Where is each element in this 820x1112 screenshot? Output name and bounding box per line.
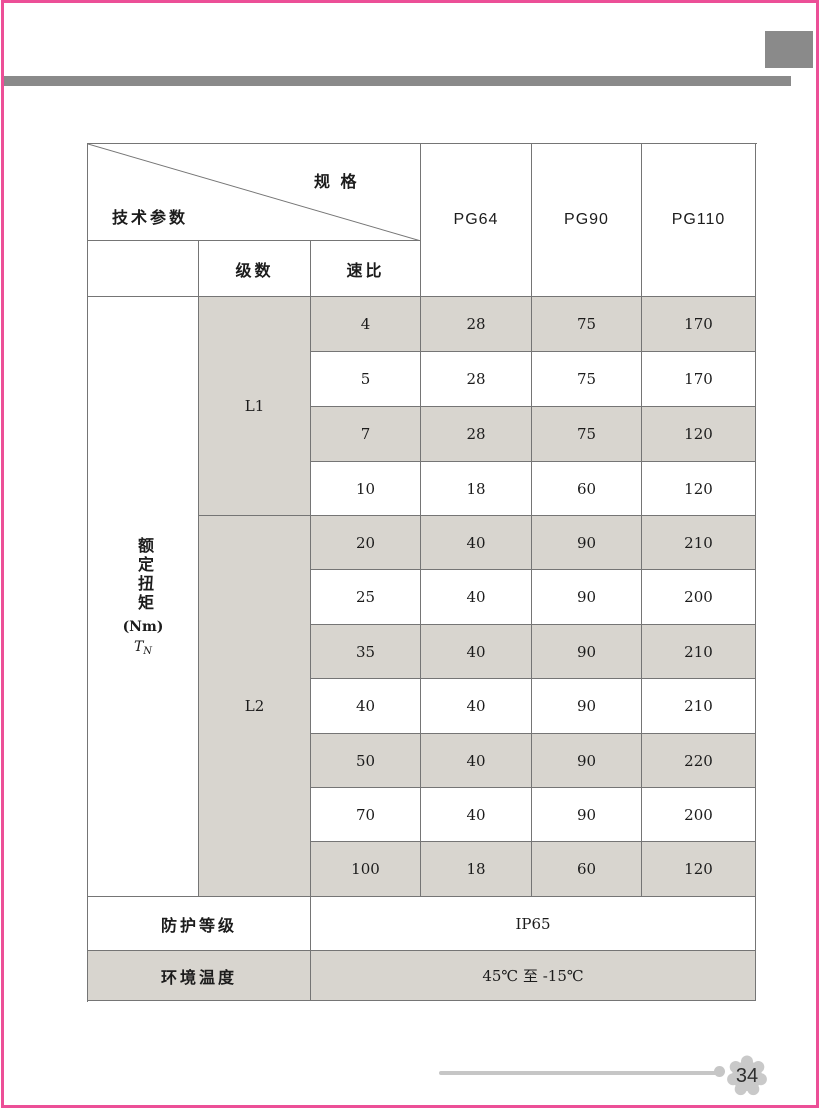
spec-table: 规 格 技术参数 PG64 PG90 PG110 级数 速比 额定扭矩 (Nm)… — [87, 143, 757, 1002]
footer-rule — [439, 1071, 720, 1075]
temperature-label: 环境温度 — [88, 951, 311, 1001]
ratio-cell: 5 — [311, 352, 421, 407]
header-gray-square — [765, 31, 813, 68]
value-cell: 40 — [421, 734, 532, 788]
value-cell: 90 — [532, 570, 642, 625]
stage-l2-cell: L2 — [199, 516, 311, 897]
col-header-pg90: PG90 — [532, 144, 642, 297]
value-cell: 40 — [421, 679, 532, 734]
value-cell: 75 — [532, 352, 642, 407]
torque-row-header: 额定扭矩 (Nm) TN — [88, 297, 199, 897]
ratio-cell: 35 — [311, 625, 421, 679]
params-axis-label: 技术参数 — [112, 204, 188, 228]
stage-l1-cell: L1 — [199, 297, 311, 516]
value-cell: 210 — [642, 679, 756, 734]
value-cell: 75 — [532, 407, 642, 462]
temperature-value: 45℃ 至 -15℃ — [311, 951, 756, 1001]
ratio-cell: 20 — [311, 516, 421, 570]
ratio-cell: 7 — [311, 407, 421, 462]
value-cell: 28 — [421, 297, 532, 352]
ratio-cell: 100 — [311, 842, 421, 897]
value-cell: 220 — [642, 734, 756, 788]
value-cell: 28 — [421, 407, 532, 462]
value-cell: 200 — [642, 570, 756, 625]
torque-vertical-label: 额定扭矩 — [131, 537, 155, 613]
value-cell: 18 — [421, 842, 532, 897]
stages-header: 级数 — [199, 241, 311, 297]
value-cell: 90 — [532, 788, 642, 842]
protection-value: IP65 — [311, 897, 756, 951]
value-cell: 120 — [642, 407, 756, 462]
value-cell: 90 — [532, 734, 642, 788]
empty-header-cell — [88, 241, 199, 297]
value-cell: 40 — [421, 788, 532, 842]
protection-label: 防护等级 — [88, 897, 311, 951]
value-cell: 90 — [532, 679, 642, 734]
value-cell: 200 — [642, 788, 756, 842]
value-cell: 28 — [421, 352, 532, 407]
spec-axis-label: 规 格 — [314, 168, 359, 192]
value-cell: 210 — [642, 516, 756, 570]
value-cell: 170 — [642, 352, 756, 407]
torque-unit-label: (Nm) — [123, 619, 164, 635]
value-cell: 90 — [532, 625, 642, 679]
value-cell: 75 — [532, 297, 642, 352]
value-cell: 90 — [532, 516, 642, 570]
value-cell: 170 — [642, 297, 756, 352]
header-gray-bar — [4, 76, 791, 86]
value-cell: 60 — [532, 842, 642, 897]
ratio-cell: 25 — [311, 570, 421, 625]
document-page: 规 格 技术参数 PG64 PG90 PG110 级数 速比 额定扭矩 (Nm)… — [0, 0, 820, 1112]
value-cell: 40 — [421, 570, 532, 625]
table-corner-cell: 规 格 技术参数 — [88, 144, 421, 241]
value-cell: 60 — [532, 462, 642, 516]
value-cell: 40 — [421, 516, 532, 570]
value-cell: 210 — [642, 625, 756, 679]
value-cell: 120 — [642, 842, 756, 897]
value-cell: 120 — [642, 462, 756, 516]
ratio-header: 速比 — [311, 241, 421, 297]
value-cell: 40 — [421, 625, 532, 679]
torque-symbol-label: TN — [134, 639, 152, 657]
ratio-cell: 40 — [311, 679, 421, 734]
page-number: 34 — [725, 1054, 769, 1098]
value-cell: 18 — [421, 462, 532, 516]
col-header-pg64: PG64 — [421, 144, 532, 297]
ratio-cell: 4 — [311, 297, 421, 352]
ratio-cell: 50 — [311, 734, 421, 788]
ratio-cell: 10 — [311, 462, 421, 516]
col-header-pg110: PG110 — [642, 144, 756, 297]
footer-rule-end-dot — [714, 1066, 725, 1077]
ratio-cell: 70 — [311, 788, 421, 842]
